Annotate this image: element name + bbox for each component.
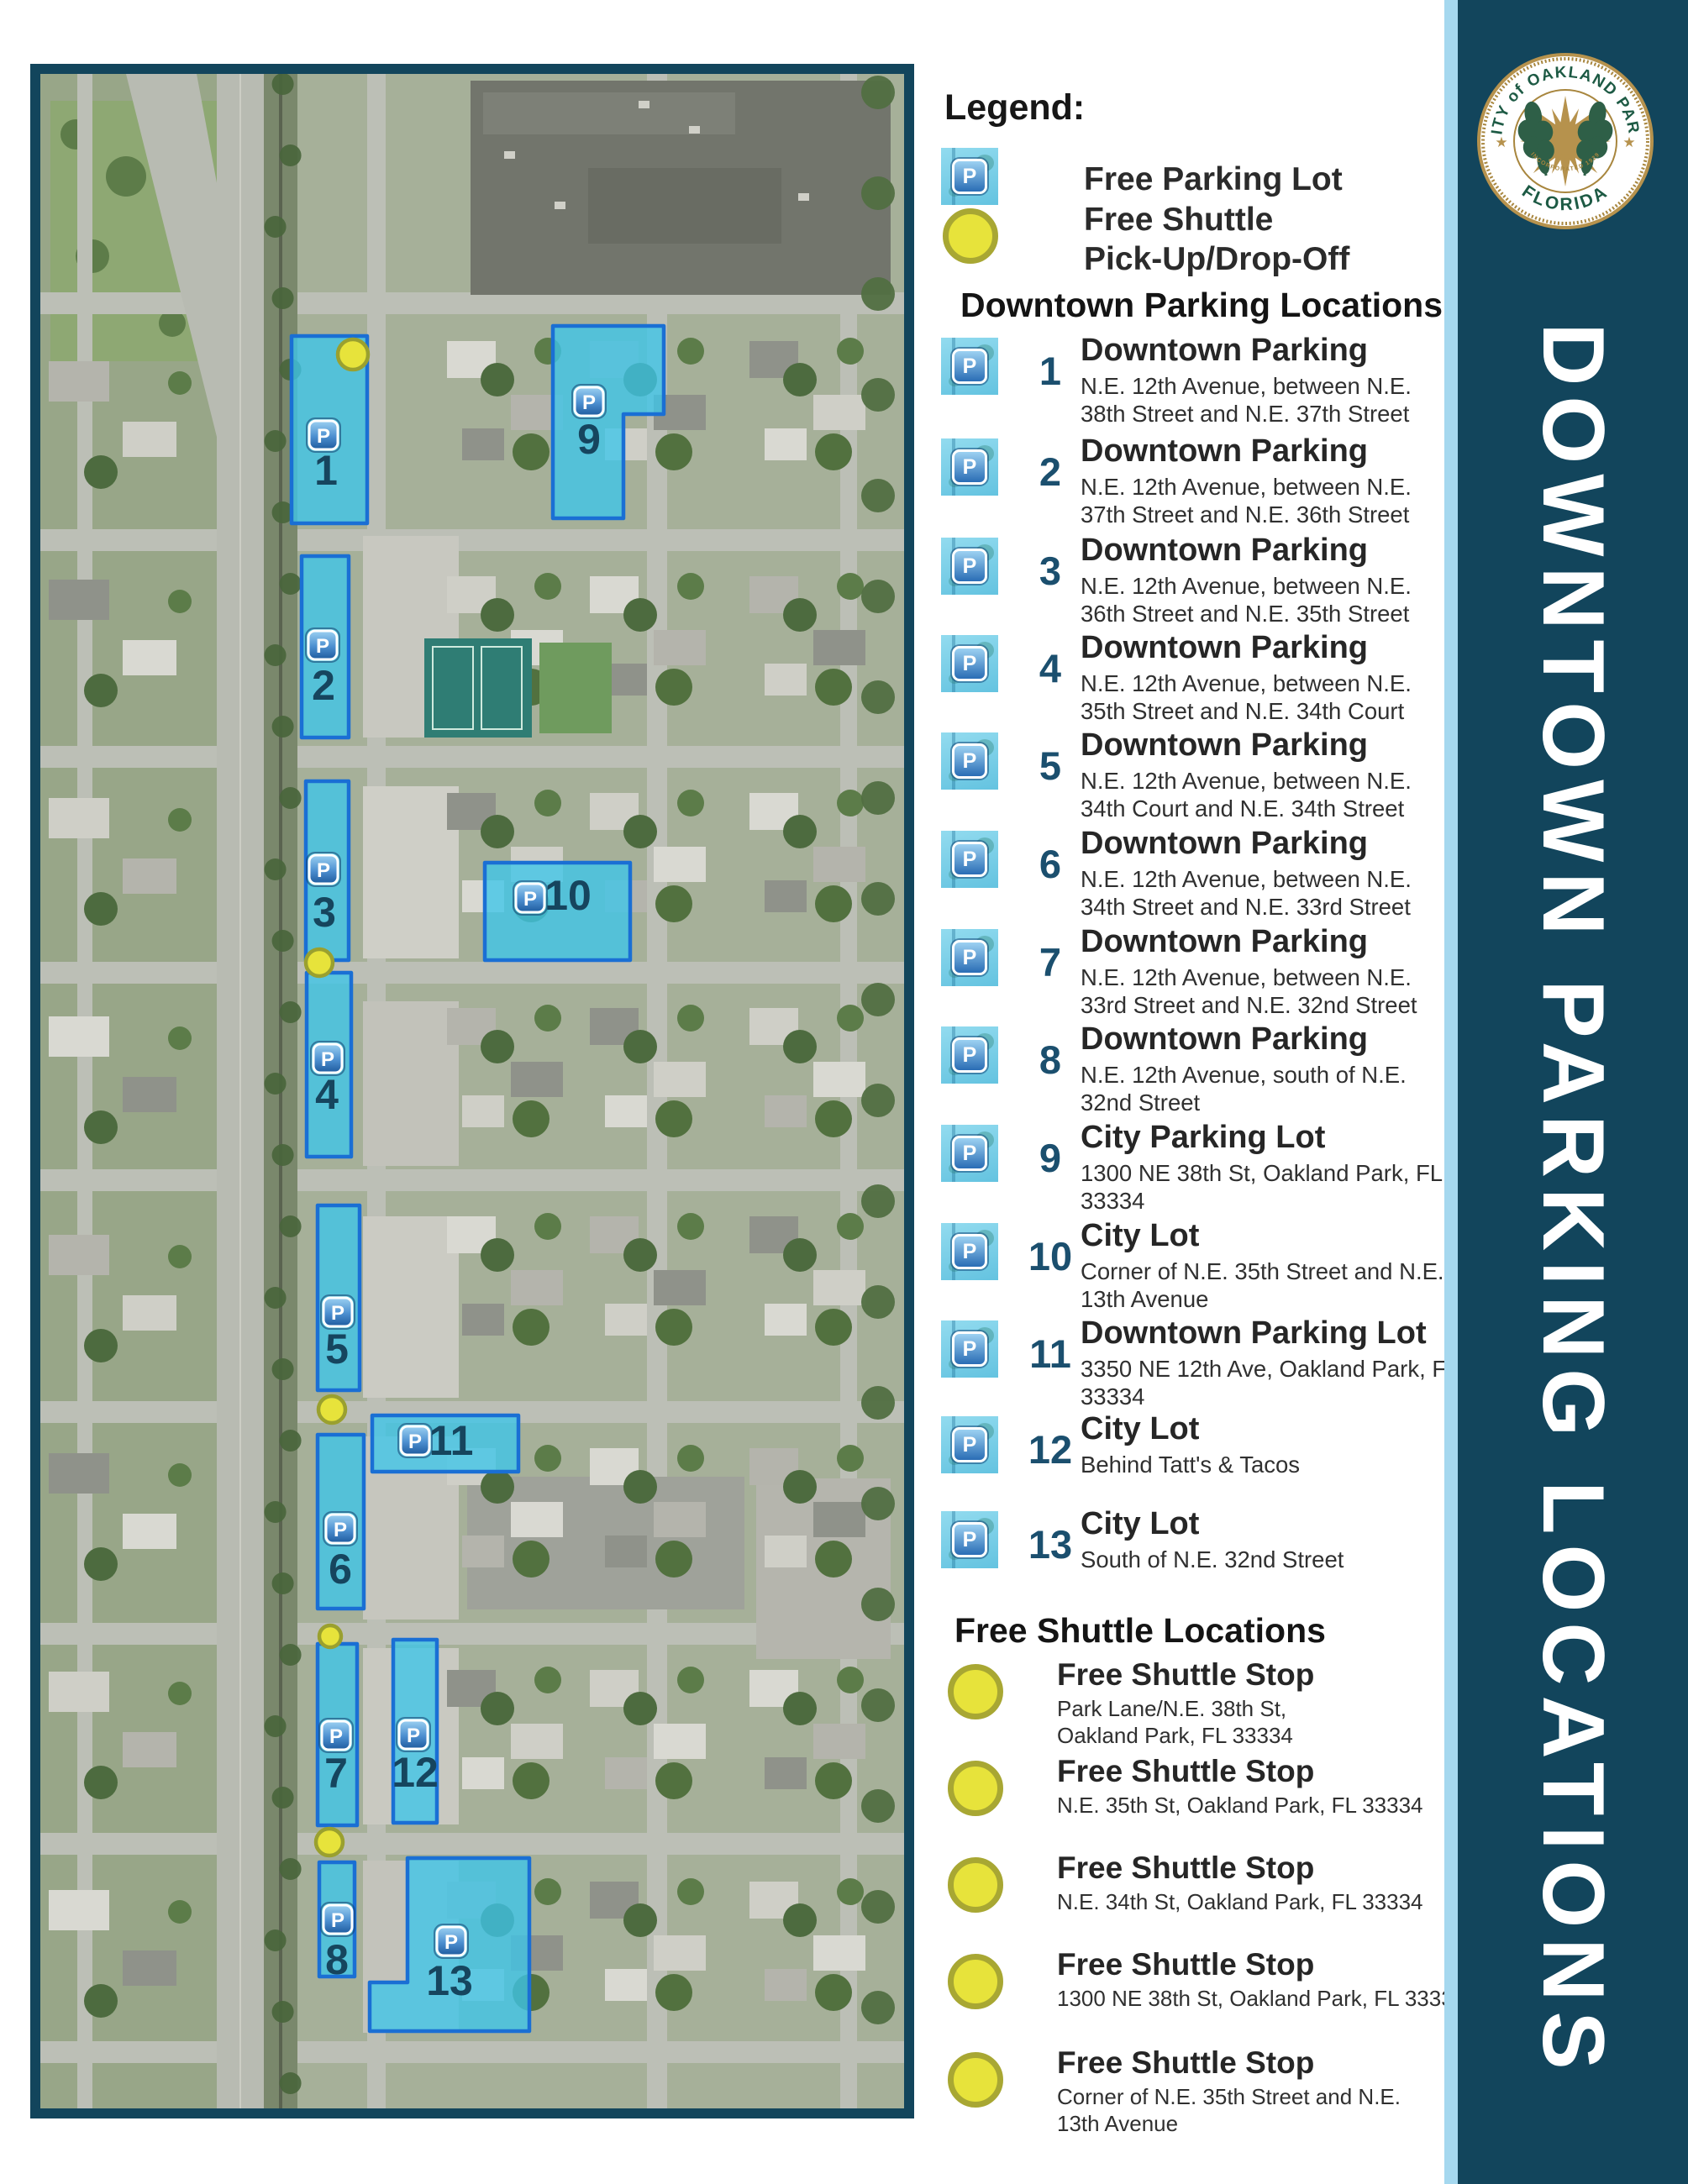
parking-lot-thumb-icon: P	[941, 635, 998, 692]
p-badge-icon: P	[317, 425, 330, 448]
parking-entry-row: P 6 Downtown Parking N.E. 12th Avenue, b…	[941, 827, 1504, 927]
shuttle-stop-dot-4	[319, 1625, 341, 1647]
p-badge-icon: P	[408, 1431, 422, 1453]
lot-number-label: 8	[325, 1936, 349, 1983]
parking-lot-thumb-icon: P	[941, 538, 998, 595]
parking-lot-thumb-icon: P	[941, 929, 998, 986]
map-panel: P1P2P3P4P5P6P7P8P9P10P11P12P13	[30, 64, 914, 2118]
parking-entry-address: N.E. 12th Avenue, between N.E. 34th Stre…	[1081, 865, 1460, 921]
parking-entry-row: P 2 Downtown Parking N.E. 12th Avenue, b…	[941, 435, 1504, 534]
banner-title: DOWNTOWN PARKING LOCATIONS	[1458, 248, 1688, 2155]
parking-lot-overlay-3: P3	[306, 781, 349, 960]
parking-entry-row: P 12 City Lot Behind Tatt's & Tacos	[941, 1413, 1504, 1512]
parking-lot-thumb-icon: P	[941, 1416, 998, 1473]
parking-entry-title: City Lot	[1081, 1220, 1484, 1253]
parking-entry-title: Downtown Parking	[1081, 827, 1484, 861]
p-badge-icon: P	[952, 842, 987, 877]
shuttle-stop-icon	[948, 1761, 1003, 1816]
parking-entry-row: P 4 Downtown Parking N.E. 12th Avenue, b…	[941, 632, 1504, 731]
parking-entry-row: P 7 Downtown Parking N.E. 12th Avenue, b…	[941, 926, 1504, 1025]
parking-lot-overlay-2: P2	[302, 556, 349, 738]
parking-lot-thumb-icon: P	[941, 438, 998, 496]
lot-number-label: 11	[429, 1417, 474, 1464]
city-seal: CITY of OAKLAND PARK FLORIDA INCORPORATE…	[1476, 52, 1654, 230]
parking-entry-number: 4	[1012, 645, 1089, 691]
parking-entry-title: Downtown Parking	[1081, 632, 1484, 665]
map-scenery	[40, 74, 904, 2108]
p-badge-icon: P	[329, 1725, 343, 1748]
parking-flyer-page: P1P2P3P4P5P6P7P8P9P10P11P12P13 Legend: P…	[0, 0, 1688, 2184]
shuttle-entry-title: Free Shuttle Stop	[1057, 2047, 1494, 2080]
parking-entry-number: 12	[1012, 1426, 1089, 1473]
parking-entry-title: Downtown Parking	[1081, 729, 1484, 763]
p-badge-icon: P	[952, 1136, 987, 1171]
parking-entry-title: Downtown Parking	[1081, 534, 1484, 568]
parking-entry-number: 8	[1012, 1037, 1089, 1083]
shuttle-entry-address: N.E. 35th St, Oakland Park, FL 33334	[1057, 1792, 1494, 1819]
parking-entry-address: Corner of N.E. 35th Street and N.E. 13th…	[1081, 1257, 1460, 1313]
parking-entry-number: 13	[1012, 1521, 1089, 1567]
parking-lot-thumb-icon: P	[941, 1026, 998, 1084]
p-badge-icon: P	[952, 1037, 987, 1073]
shuttle-stop-legend-icon	[943, 208, 998, 264]
shuttle-stop-icon	[948, 1664, 1003, 1719]
parking-entry-row: P 11 Downtown Parking Lot 3350 NE 12th A…	[941, 1317, 1504, 1416]
parking-lot-overlay-6: P6	[318, 1435, 364, 1609]
parking-entry-title: Downtown Parking	[1081, 435, 1484, 469]
parking-entry-address: Behind Tatt's & Tacos	[1081, 1451, 1460, 1478]
shuttle-entry-title: Free Shuttle Stop	[1057, 1756, 1494, 1788]
shuttle-stop-icon	[948, 2052, 1003, 2108]
banner-accent-strip	[1444, 0, 1458, 2184]
p-badge-icon: P	[582, 391, 596, 414]
p-badge-icon: P	[952, 743, 987, 779]
shuttle-entry-address: Park Lane/N.E. 38th St, Oakland Park, FL…	[1057, 1695, 1494, 1750]
parking-entry-number: 7	[1012, 939, 1089, 985]
parking-lot-overlay-8: P8	[319, 1862, 355, 1983]
free-shuttle-legend-label-line1: Free Shuttle	[1084, 202, 1273, 239]
parking-entry-number: 3	[1012, 548, 1089, 594]
shuttle-stop-icon	[948, 1954, 1003, 2009]
lot-number-label: 13	[426, 1957, 473, 2004]
shuttle-stop-dot-2	[306, 949, 333, 976]
free-shuttle-legend-label-line2: Pick-Up/Drop-Off	[1084, 241, 1349, 278]
parking-entry-row: P 8 Downtown Parking N.E. 12th Avenue, s…	[941, 1023, 1504, 1122]
parking-entry-title: City Parking Lot	[1081, 1121, 1484, 1155]
p-badge-icon: P	[952, 940, 987, 975]
shuttle-entry-address: 1300 NE 38th St, Oakland Park, FL 33334	[1057, 1985, 1494, 2013]
parking-lot-thumb-icon: P	[941, 732, 998, 790]
parking-entry-title: Downtown Parking Lot	[1081, 1317, 1484, 1351]
parking-entry-address: N.E. 12th Avenue, between N.E. 36th Stre…	[1081, 572, 1460, 627]
free-parking-legend-label: Free Parking Lot	[1084, 161, 1343, 198]
lot-number-label: 6	[329, 1546, 352, 1593]
parking-entry-number: 10	[1012, 1233, 1089, 1279]
parking-lot-overlay-4: P4	[307, 973, 351, 1157]
lot-number-label: 2	[312, 662, 335, 709]
parking-lot-overlay-11: P11	[372, 1415, 518, 1472]
shuttle-entry-title: Free Shuttle Stop	[1057, 1949, 1494, 1982]
p-badge-icon: P	[321, 1048, 334, 1071]
parking-entry-address: N.E. 12th Avenue, between N.E. 33rd Stre…	[1081, 963, 1460, 1019]
parking-entry-title: Downtown Parking	[1081, 1023, 1484, 1057]
seal-star-left-icon: ★	[1495, 134, 1507, 150]
p-badge-icon: P	[316, 635, 329, 658]
p-badge-icon: P	[952, 1331, 987, 1367]
p-badge-icon: P	[952, 1522, 987, 1557]
lot-number-label: 3	[313, 889, 336, 936]
p-badge-icon: P	[952, 159, 987, 194]
parking-entry-address: N.E. 12th Avenue, between N.E. 34th Cour…	[1081, 767, 1460, 822]
parking-lot-thumb-icon: P	[941, 338, 998, 395]
lot-number-label: 4	[315, 1071, 339, 1118]
aerial-map: P1P2P3P4P5P6P7P8P9P10P11P12P13	[40, 74, 904, 2108]
parking-entry-number: 9	[1012, 1135, 1089, 1181]
shuttle-stop-icon	[948, 1857, 1003, 1913]
parking-lot-overlay-7: P7	[318, 1644, 357, 1825]
lot-number-label: 10	[544, 872, 592, 919]
p-badge-icon: P	[952, 349, 987, 384]
parking-entry-number: 1	[1012, 348, 1089, 394]
parking-lot-thumb-icon: P	[941, 831, 998, 888]
shuttle-entry-title: Free Shuttle Stop	[1057, 1852, 1494, 1885]
p-badge-icon: P	[952, 646, 987, 681]
parking-entry-row: P 13 City Lot South of N.E. 32nd Street	[941, 1508, 1504, 1607]
p-badge-icon: P	[331, 1909, 344, 1932]
parking-entry-address: N.E. 12th Avenue, between N.E. 35th Stre…	[1081, 669, 1460, 725]
shuttle-stop-dot-1	[338, 339, 368, 370]
parking-entry-title: Downtown Parking	[1081, 926, 1484, 959]
lot-number-label: 7	[324, 1750, 348, 1797]
shuttle-stop-dot-3	[318, 1396, 345, 1423]
parking-entry-row: P 5 Downtown Parking N.E. 12th Avenue, b…	[941, 729, 1504, 828]
parking-entry-row: P 1 Downtown Parking N.E. 12th Avenue, b…	[941, 334, 1504, 433]
p-badge-icon: P	[317, 859, 330, 882]
parking-entry-address: South of N.E. 32nd Street	[1081, 1546, 1460, 1573]
lot-number-label: 1	[314, 447, 338, 494]
legend-heading: Legend:	[944, 87, 1085, 129]
shuttle-entry-address: Corner of N.E. 35th Street and N.E. 13th…	[1057, 2083, 1494, 2138]
parking-entry-number: 2	[1012, 449, 1089, 495]
parking-entry-address: N.E. 12th Avenue, between N.E. 37th Stre…	[1081, 473, 1460, 528]
parking-entry-address: N.E. 12th Avenue, south of N.E. 32nd Str…	[1081, 1061, 1460, 1116]
free-parking-legend-icon: P	[941, 148, 998, 205]
p-badge-icon: P	[331, 1302, 344, 1325]
parking-lot-thumb-icon: P	[941, 1223, 998, 1280]
p-badge-icon: P	[952, 449, 987, 485]
parking-lot-thumb-icon: P	[941, 1125, 998, 1182]
shuttle-section-heading: Free Shuttle Locations	[954, 1611, 1326, 1651]
p-badge-icon: P	[952, 1427, 987, 1462]
parking-entry-title: Downtown Parking	[1081, 334, 1484, 368]
parking-entry-number: 11	[1012, 1331, 1089, 1377]
parking-entry-number: 5	[1012, 743, 1089, 789]
parking-entry-row: P 9 City Parking Lot 1300 NE 38th St, Oa…	[941, 1121, 1504, 1221]
parking-entry-row: P 3 Downtown Parking N.E. 12th Avenue, b…	[941, 534, 1504, 633]
lot-number-label: 5	[325, 1326, 349, 1373]
shuttle-entry-address: N.E. 34th St, Oakland Park, FL 33334	[1057, 1888, 1494, 1916]
parking-entry-address: N.E. 12th Avenue, between N.E. 38th Stre…	[1081, 372, 1460, 428]
parking-lot-overlay-12: P12	[392, 1640, 439, 1823]
p-badge-icon: P	[523, 888, 537, 911]
p-badge-icon: P	[334, 1519, 347, 1541]
shuttle-stop-dot-5	[316, 1829, 343, 1856]
sun-core	[1552, 128, 1579, 155]
shuttle-entry-title: Free Shuttle Stop	[1057, 1659, 1494, 1692]
parking-entry-number: 6	[1012, 841, 1089, 887]
parking-entry-row: P 10 City Lot Corner of N.E. 35th Street…	[941, 1220, 1504, 1319]
parking-entry-address: 1300 NE 38th St, Oakland Park, FL 33334	[1081, 1159, 1460, 1215]
parking-lot-overlay-10: P10	[485, 863, 630, 960]
parking-lot-thumb-icon: P	[941, 1511, 998, 1568]
p-badge-icon: P	[952, 1234, 987, 1269]
lot-number-label: 9	[577, 416, 601, 463]
parking-lot-overlay-5: P5	[318, 1205, 360, 1390]
parking-entry-title: City Lot	[1081, 1508, 1484, 1541]
parking-entry-address: 3350 NE 12th Ave, Oakland Park, FL 33334	[1081, 1355, 1460, 1410]
p-badge-icon: P	[952, 549, 987, 584]
p-badge-icon: P	[407, 1725, 420, 1747]
parking-lot-thumb-icon: P	[941, 1320, 998, 1378]
p-badge-icon: P	[444, 1931, 458, 1954]
parking-section-heading: Downtown Parking Locations	[960, 286, 1443, 325]
parking-entry-title: City Lot	[1081, 1413, 1484, 1446]
seal-star-right-icon: ★	[1622, 134, 1635, 150]
lot-number-label: 12	[392, 1749, 439, 1796]
